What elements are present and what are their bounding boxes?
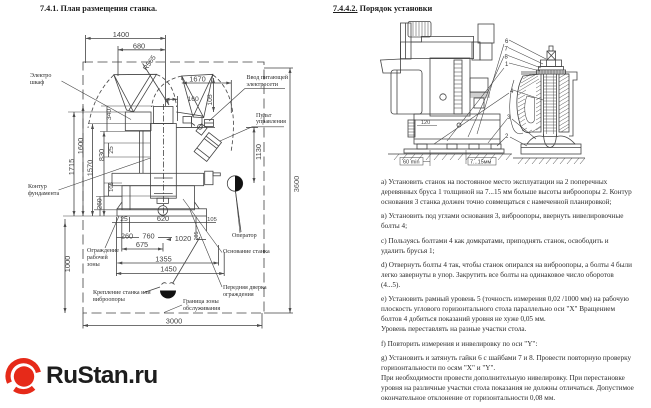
svg-text:1450: 1450 (160, 264, 176, 273)
svg-text:105: 105 (207, 217, 217, 223)
svg-text:R565: R565 (142, 54, 157, 72)
svg-text:1020: 1020 (175, 234, 191, 243)
svg-text:25: 25 (108, 146, 115, 154)
svg-text:260: 260 (97, 198, 104, 210)
svg-text:680: 680 (133, 41, 145, 50)
svg-text:3600: 3600 (292, 176, 301, 192)
svg-text:1600: 1600 (76, 138, 85, 154)
svg-text:830: 830 (97, 149, 106, 161)
svg-text:1715: 1715 (67, 159, 76, 175)
svg-text:1130: 1130 (254, 144, 263, 160)
svg-text:120: 120 (421, 120, 430, 126)
svg-text:1000: 1000 (63, 256, 72, 272)
svg-text:8: 8 (505, 55, 509, 61)
svg-text:1570: 1570 (86, 160, 95, 176)
svg-text:760: 760 (142, 231, 154, 240)
svg-text:2: 2 (505, 134, 509, 140)
svg-text:7...15мм: 7...15мм (470, 160, 492, 166)
svg-text:7: 7 (505, 47, 509, 53)
svg-text:25: 25 (120, 216, 128, 223)
svg-text:1355: 1355 (155, 254, 171, 263)
svg-text:675: 675 (136, 240, 148, 249)
svg-text:3000: 3000 (166, 316, 182, 325)
svg-text:60 min: 60 min (403, 160, 420, 166)
svg-text:340: 340 (106, 109, 113, 121)
svg-text:6: 6 (505, 39, 509, 45)
svg-text:1400: 1400 (113, 30, 129, 39)
svg-text:260: 260 (121, 231, 133, 240)
svg-text:1: 1 (505, 62, 509, 68)
